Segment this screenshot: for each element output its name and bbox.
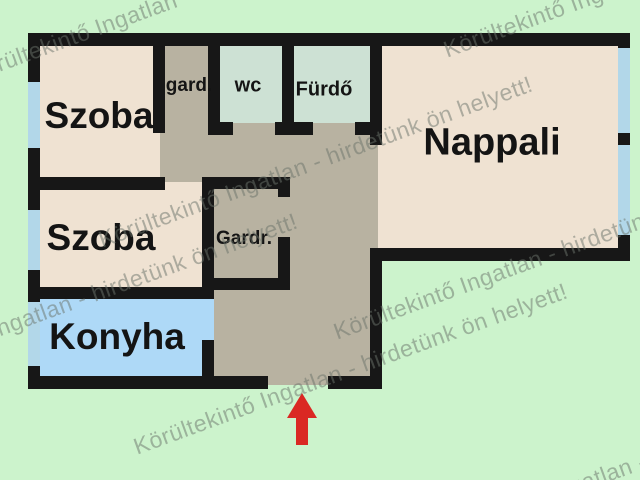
window [28,302,40,366]
wall [203,278,290,290]
room-label-gardr: Gardr. [216,228,272,250]
room-label-szoba1: Szoba [45,95,154,137]
wall [28,287,214,299]
window [28,82,40,148]
window [618,145,630,235]
wall [28,33,630,46]
room-label-szoba2: Szoba [47,217,156,259]
window [618,48,630,133]
watermark-text: Körültekintő Ingatlan - hirdetünk ön hel… [420,371,640,480]
wall [153,33,165,133]
entrance-arrow-icon [285,391,319,447]
floor-plan: Szoba Szoba Konyha Nappali gard. wc Fürd… [0,0,640,480]
wall [370,248,630,261]
hallway-right [288,180,378,296]
room-label-gard: gard. [166,75,212,97]
wall [370,33,382,145]
wall [208,122,233,135]
room-label-konyha: Konyha [49,316,185,358]
wall [28,376,268,389]
wall [202,340,214,389]
wall [28,33,40,82]
wall [618,235,630,261]
wall [275,122,313,135]
wall [28,177,165,190]
hallway-top [160,123,378,184]
window [28,210,40,270]
wall [618,33,630,48]
room-label-nappali: Nappali [423,122,560,165]
wall [618,133,630,145]
wall [282,39,294,123]
room-label-wc: wc [235,75,262,98]
wall [370,252,382,389]
hallway-bottom [214,290,378,385]
wall [278,177,290,197]
room-label-furdo: Fürdő [296,79,353,102]
wall [203,177,290,189]
